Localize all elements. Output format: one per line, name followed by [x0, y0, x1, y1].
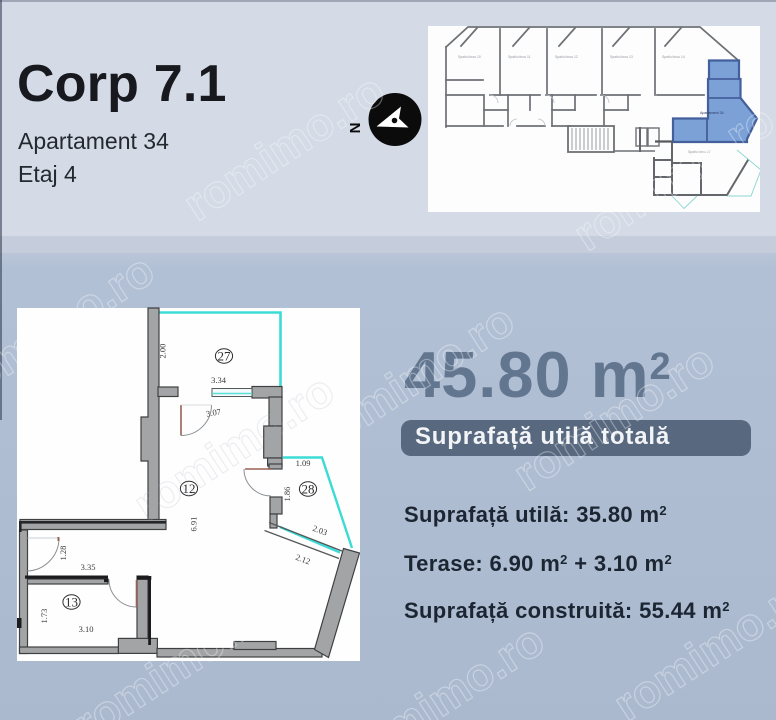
svg-text:Spatiu birou 10: Spatiu birou 10	[458, 55, 481, 59]
svg-text:6.91: 6.91	[189, 517, 199, 532]
svg-text:Spatiu birou 13: Spatiu birou 13	[610, 55, 633, 59]
svg-text:1.09: 1.09	[296, 458, 311, 468]
svg-text:1.86: 1.86	[282, 487, 292, 502]
svg-text:2.00: 2.00	[158, 344, 168, 359]
svg-text:28: 28	[302, 482, 315, 497]
svg-text:27: 27	[218, 349, 232, 364]
svg-text:Spatiu birou 12: Spatiu birou 12	[555, 55, 578, 59]
svg-text:13: 13	[65, 595, 78, 610]
svg-text:Spatiu birou 14: Spatiu birou 14	[662, 55, 685, 59]
svg-text:3.35: 3.35	[81, 562, 96, 572]
svg-text:3.34: 3.34	[211, 375, 227, 385]
svg-text:3.10: 3.10	[79, 624, 94, 634]
svg-text:1.73: 1.73	[39, 609, 49, 624]
svg-text:Spatiu birou 11: Spatiu birou 11	[508, 55, 531, 59]
svg-text:1.28: 1.28	[58, 546, 68, 561]
